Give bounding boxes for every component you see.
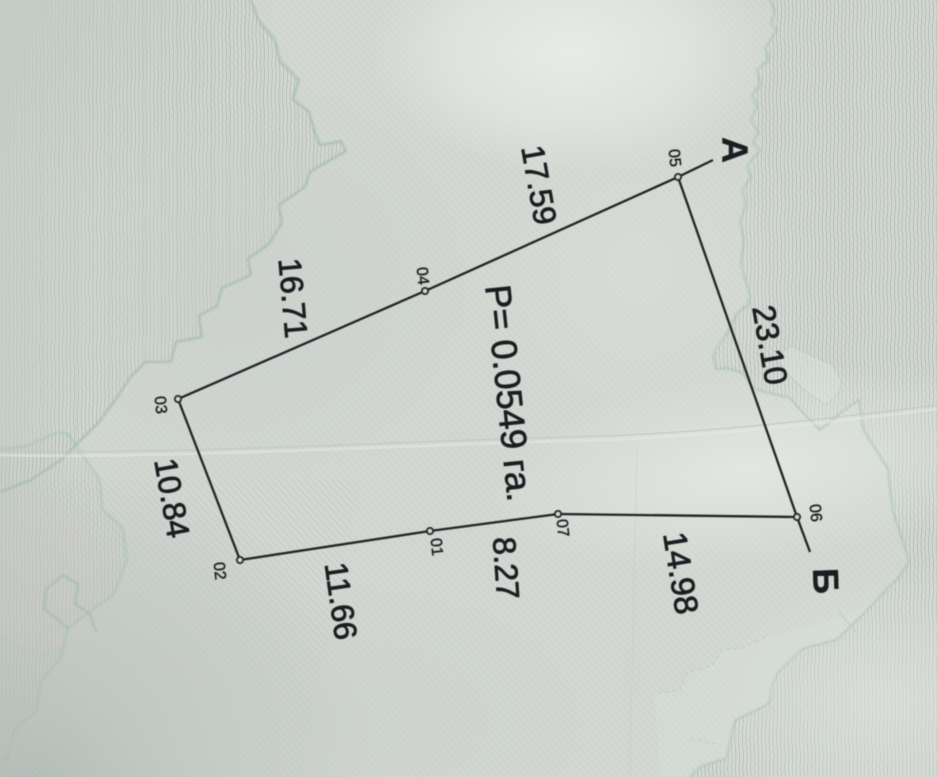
svg-text:8.27: 8.27	[486, 536, 526, 601]
svg-text:07: 07	[553, 518, 572, 538]
svg-text:16.71: 16.71	[272, 257, 315, 340]
svg-text:02: 02	[210, 561, 229, 581]
svg-text:05: 05	[665, 148, 684, 168]
svg-text:04: 04	[413, 266, 432, 286]
svg-text:03: 03	[151, 395, 170, 415]
svg-text:А: А	[715, 137, 756, 163]
svg-text:06: 06	[806, 503, 825, 523]
svg-text:01: 01	[427, 537, 446, 557]
svg-text:Б: Б	[805, 567, 847, 594]
